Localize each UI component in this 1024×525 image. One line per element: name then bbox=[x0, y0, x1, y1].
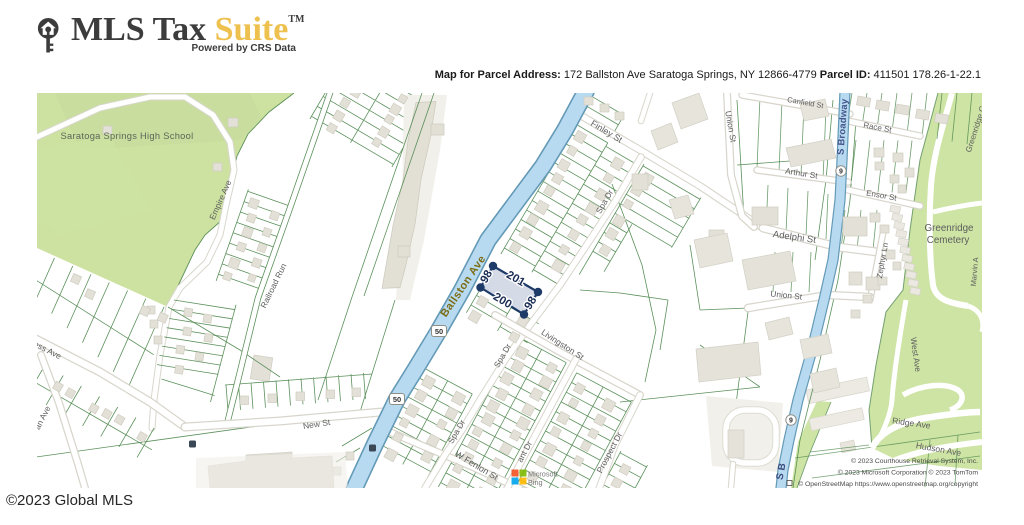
svg-text:9: 9 bbox=[839, 169, 843, 176]
svg-text:Greenridge: Greenridge bbox=[924, 223, 974, 234]
svg-text:9: 9 bbox=[789, 418, 793, 425]
svg-text:Cemetery: Cemetery bbox=[927, 235, 970, 246]
svg-text:50: 50 bbox=[393, 395, 401, 404]
svg-text:© 2023 Courthouse Retrieval Sy: © 2023 Courthouse Retrieval System, Inc. bbox=[851, 457, 978, 465]
svg-text:© OpenStreetMap https://www.op: © OpenStreetMap https://www.openstreetma… bbox=[798, 480, 978, 488]
svg-text:Saratoga Springs High School: Saratoga Springs High School bbox=[61, 131, 194, 141]
svg-text:© 2023 Microsoft Corporation ©: © 2023 Microsoft Corporation © 2023 TomT… bbox=[838, 469, 979, 477]
svg-text:Bing: Bing bbox=[528, 478, 543, 487]
svg-text:50: 50 bbox=[435, 327, 443, 336]
